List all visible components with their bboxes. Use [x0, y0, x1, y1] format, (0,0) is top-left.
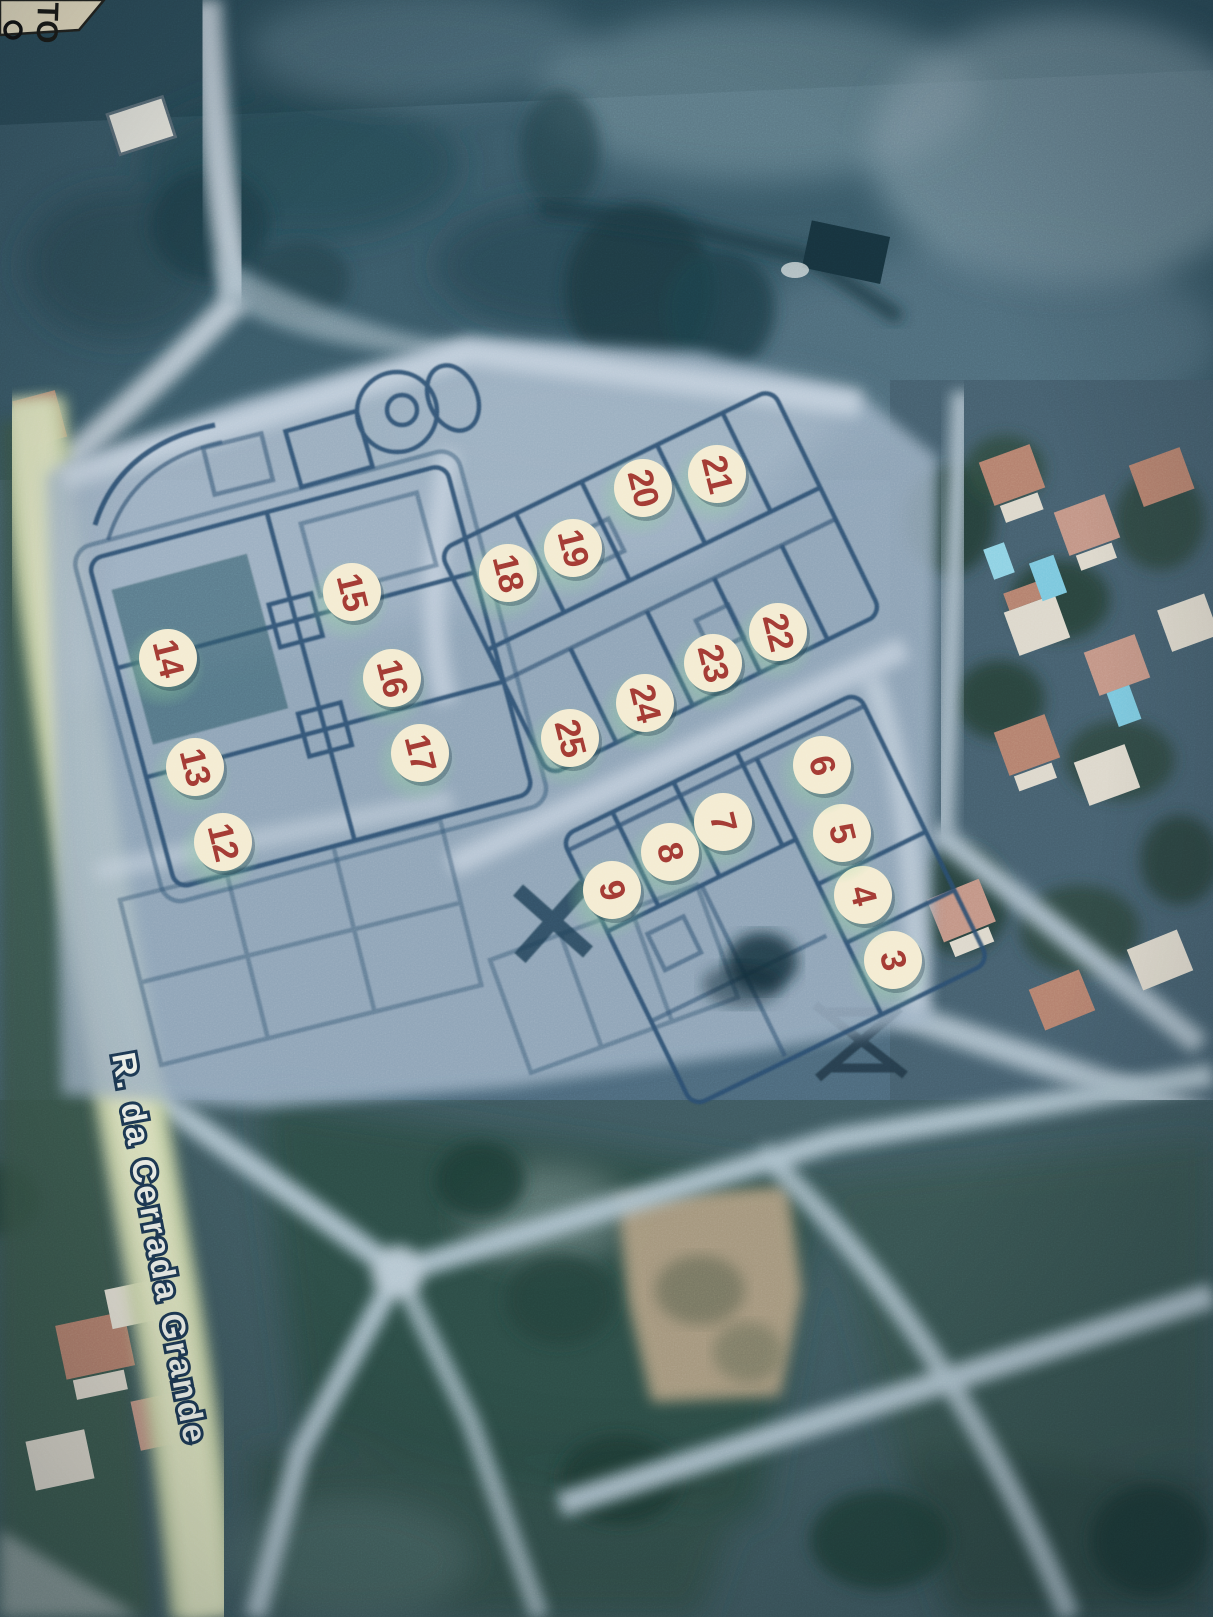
- map-canvas: R. da Cerrada Grande 3456789121314151617…: [0, 0, 1213, 1617]
- printed-aerial-map-photo: R. da Cerrada Grande 3456789121314151617…: [0, 0, 1213, 1617]
- photo-vignette: [0, 0, 1213, 1617]
